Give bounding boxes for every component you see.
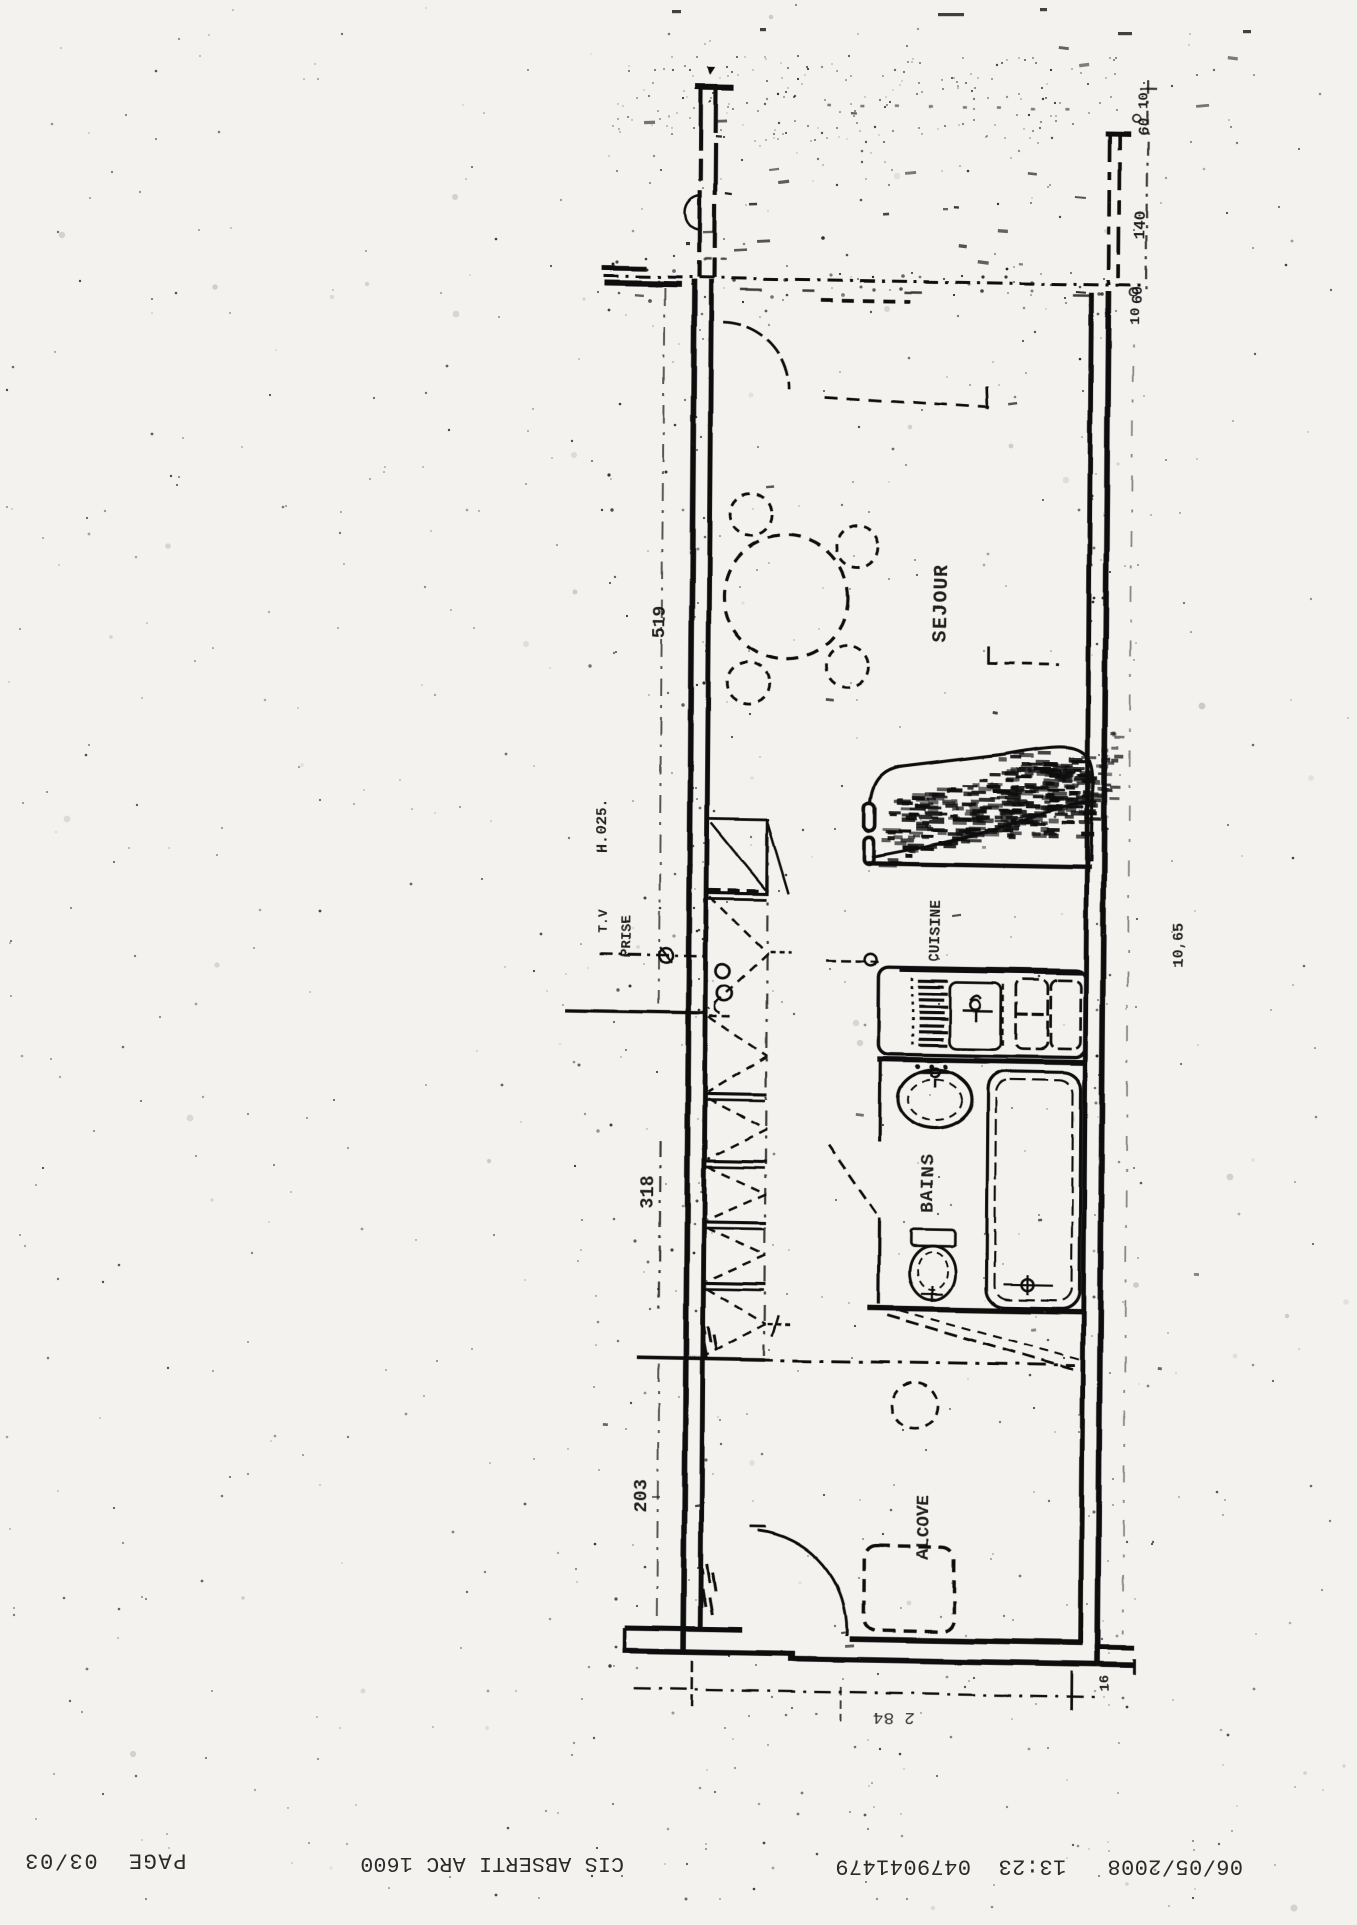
svg-text:CIS ABSERTI ARC 1600: CIS ABSERTI ARC 1600 — [360, 1851, 624, 1875]
svg-text:ALCOVE: ALCOVE — [914, 1494, 935, 1559]
svg-text:2 84: 2 84 — [874, 1706, 915, 1726]
svg-text:10: 10 — [1137, 92, 1153, 109]
svg-text:SEJOUR: SEJOUR — [930, 564, 954, 642]
svg-text:60: 60 — [1130, 286, 1147, 304]
svg-text:10: 10 — [1128, 308, 1144, 325]
svg-text:CUISINE: CUISINE — [928, 900, 944, 961]
svg-text:PRISE: PRISE — [619, 915, 635, 957]
svg-text:06/05/2008 13:23 0479041479: 06/05/2008 13:23 0479041479 — [835, 1854, 1243, 1879]
svg-text:519: 519 — [651, 606, 671, 639]
svg-text:318: 318 — [637, 1175, 659, 1210]
svg-text:16: 16 — [1097, 1675, 1113, 1692]
svg-text:PAGE 03/03: PAGE 03/03 — [24, 1848, 187, 1873]
svg-text:140: 140 — [1132, 210, 1150, 239]
svg-text:10,65: 10,65 — [1171, 923, 1188, 968]
svg-text:T.V: T.V — [596, 909, 611, 933]
svg-text:H.025.: H.025. — [594, 798, 611, 852]
svg-text:BAINS: BAINS — [919, 1153, 939, 1212]
svg-text:60: 60 — [1136, 117, 1153, 135]
svg-text:203: 203 — [633, 1479, 653, 1512]
